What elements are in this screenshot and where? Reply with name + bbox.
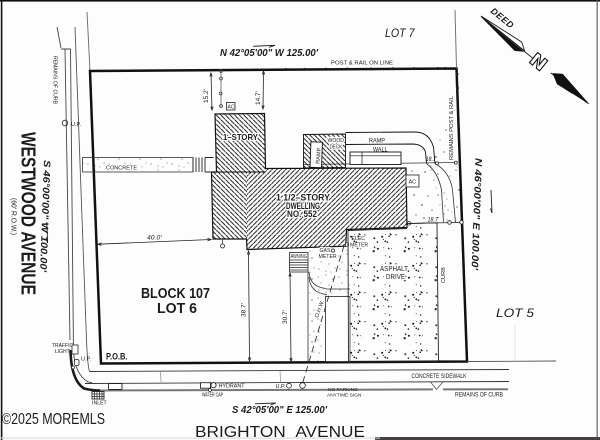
svg-text:LOT 5: LOT 5 [496,308,535,320]
svg-text:LIGHT: LIGHT [55,349,70,355]
svg-text:WOOD: WOOD [328,138,345,144]
svg-text:U.P.: U.P. [81,356,91,362]
svg-text:(60' R.O.W.): (60' R.O.W.) [10,198,17,235]
svg-text:30.7': 30.7' [282,310,289,324]
svg-text:RAMP: RAMP [369,138,385,145]
svg-text:DRIVE: DRIVE [386,272,405,281]
svg-text:38.7': 38.7' [241,303,248,317]
svg-text:HYDRANT: HYDRANT [219,383,246,389]
svg-text:©2025 MOREMLS: ©2025 MOREMLS [2,411,105,428]
svg-text:REMAINS POST & RAIL: REMAINS POST & RAIL [449,96,455,160]
svg-text:LOT 6: LOT 6 [157,301,197,317]
svg-text:CONCRETE SIDEWALK: CONCRETE SIDEWALK [412,373,468,380]
svg-text:NO. 552: NO. 552 [287,209,317,220]
svg-text:REMAINS OF CURB: REMAINS OF CURB [455,392,503,399]
svg-text:INLET: INLET [92,401,108,407]
svg-text:WATER CAP: WATER CAP [202,392,223,398]
svg-text:S 42°05'00" E 125.00': S 42°05'00" E 125.00' [232,404,327,416]
svg-text:WESTWOOD AVENUE: WESTWOOD AVENUE [17,132,39,295]
svg-text:ANYTIME SIGN: ANYTIME SIGN [327,393,362,399]
svg-text:LOT 7: LOT 7 [385,28,415,40]
svg-text:U.P.: U.P. [276,384,286,390]
svg-text:POST & RAIL ON LINE: POST & RAIL ON LINE [331,61,393,67]
svg-text:AWNING: AWNING [291,254,308,260]
svg-text:BRIGHTON AVENUE: BRIGHTON AVENUE [195,424,365,440]
svg-text:METER: METER [319,254,337,260]
svg-text:N 46°00'00" E 100.00': N 46°00'00" E 100.00' [469,158,484,271]
svg-text:14.7': 14.7' [255,91,262,105]
svg-text:AC: AC [228,105,235,111]
svg-text:40.0': 40.0' [147,235,162,242]
svg-text:CURB: CURB [441,267,447,283]
svg-text:AC: AC [409,180,417,186]
svg-text:WALL: WALL [373,148,388,154]
svg-text:1–STORY: 1–STORY [223,132,258,142]
svg-text:DECK.: DECK. [330,145,344,151]
svg-text:U.P.: U.P. [71,122,81,128]
svg-text:CONCRETE: CONCRETE [106,166,137,172]
svg-text:BLOCK 107: BLOCK 107 [141,286,210,302]
svg-text:NO PARKING: NO PARKING [328,387,358,393]
svg-text:15.2': 15.2' [203,89,210,103]
svg-text:N 42°05'00" W 125.00': N 42°05'00" W 125.00' [220,48,319,59]
svg-text:P.O.B.: P.O.B. [106,352,128,362]
svg-text:REMAINS OF CURB: REMAINS OF CURB [52,56,58,104]
